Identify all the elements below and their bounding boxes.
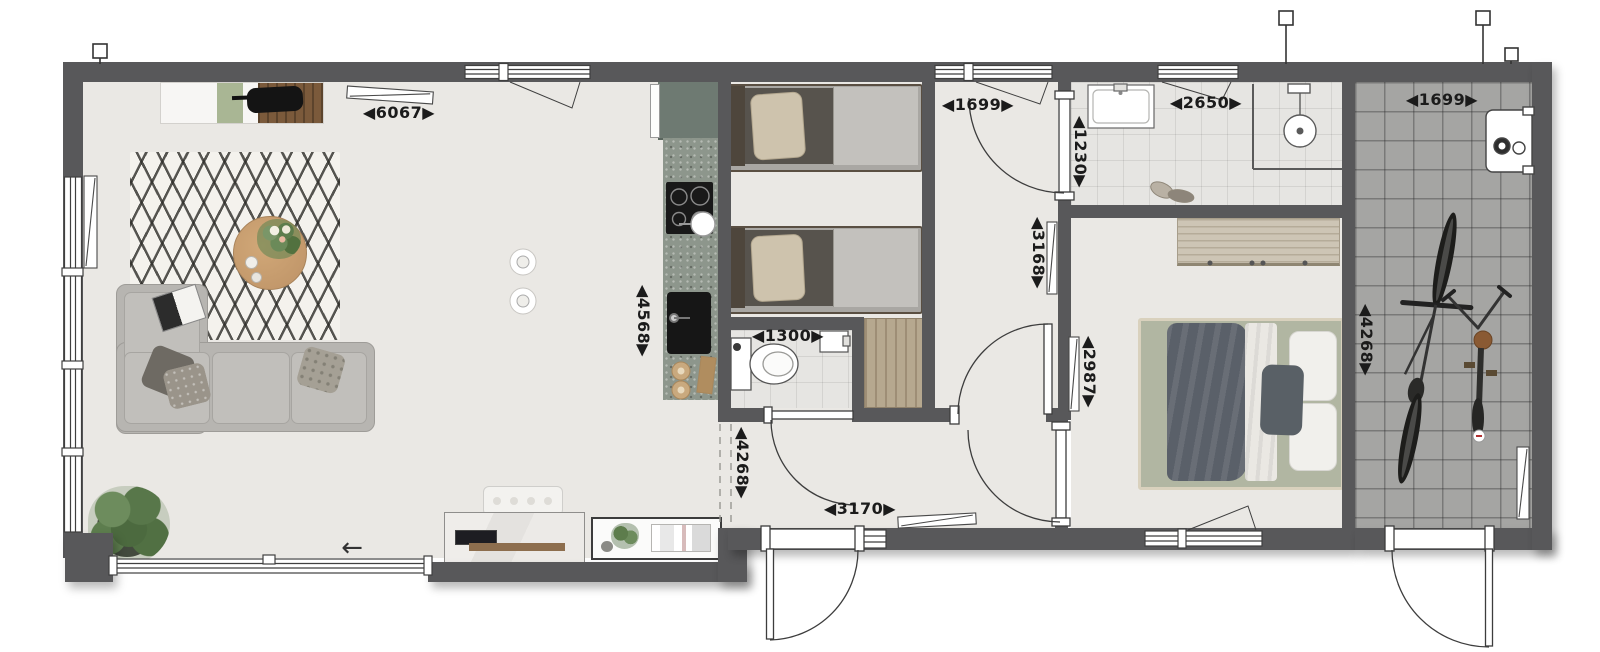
kitchen-sink: [667, 292, 711, 354]
twin-wardrobe: [864, 318, 924, 408]
coffee-table-candle: [251, 272, 262, 283]
wall: [1355, 528, 1552, 550]
bench-knob: [510, 497, 518, 505]
wall: [718, 82, 731, 420]
wall: [1058, 193, 1071, 205]
wall: [1055, 518, 1068, 528]
dim-kitchen-depth: ◀4568▶: [635, 285, 651, 357]
kitchen-tall-cabinet: [658, 82, 718, 140]
bed-pillow: [750, 234, 805, 303]
wall: [1532, 62, 1552, 550]
dim-entrance-width: ◀3170▶: [824, 501, 896, 517]
wall: [1342, 82, 1355, 528]
wall: [852, 317, 864, 422]
wall: [428, 562, 747, 582]
storage-room-floor: [1355, 82, 1532, 528]
cabinet-shelf: [469, 543, 565, 551]
cabinet-pot: [601, 541, 613, 552]
media-cabinet: [444, 512, 585, 564]
cooktop: [666, 182, 713, 234]
bench-knob: [493, 497, 501, 505]
bed-pillow: [750, 91, 806, 160]
sliding-direction-arrow-icon: ←: [341, 535, 363, 561]
single-bed-2: [728, 226, 923, 314]
tv: [246, 86, 303, 114]
dim-bedroom-depth: ◀2987▶: [1081, 336, 1097, 408]
sideboard-green-section: [217, 83, 243, 123]
display-cabinet: [591, 517, 722, 560]
wall: [728, 528, 1355, 550]
single-bed-1: [728, 84, 923, 172]
wall: [922, 82, 935, 408]
floor-plan: ◀6067▶ ◀4568▶ ◀1699▶ ◀2650▶ ◀1699▶ ◀1230…: [0, 0, 1600, 652]
dim-living-depth: ◀4268▶: [734, 427, 750, 499]
dim-hallway-width: ◀1699▶: [942, 97, 1014, 113]
dim-storage-width: ◀1699▶: [1406, 92, 1478, 108]
dim-bathroom-depth: ◀1230▶: [1072, 116, 1088, 188]
cabinet-frames: [651, 524, 711, 552]
double-bed: [1138, 318, 1344, 490]
bed-duvet: [833, 229, 918, 307]
coffee-table-flowers: [268, 224, 294, 246]
bed-headboard: [730, 86, 745, 166]
dim-bathroom-width: ◀2650▶: [1170, 95, 1242, 111]
vent-icon: [93, 11, 1518, 64]
wall: [1058, 205, 1071, 420]
bed-headboard: [730, 228, 745, 308]
bed-pillow-dark: [1260, 364, 1304, 435]
bed-blanket: [1167, 323, 1247, 481]
master-wardrobe: [1177, 218, 1340, 266]
coffee-table-dish: [245, 256, 258, 269]
sofa-cushion: [212, 352, 290, 424]
sliding-door: [109, 555, 432, 575]
bench-knob: [544, 497, 552, 505]
wall: [1055, 420, 1068, 430]
dim-storage-depth: ◀4268▶: [1358, 304, 1374, 376]
dim-wc-width: ◀1300▶: [752, 328, 824, 344]
wall: [63, 82, 83, 558]
kitchen-cabinet-panel: [650, 84, 660, 138]
wall: [65, 533, 113, 582]
wall: [1058, 82, 1071, 98]
kitchen-counter: [663, 138, 718, 400]
wall: [63, 62, 1552, 82]
dim-living-width: ◀6067▶: [363, 105, 435, 121]
dim-hallway-depth: ◀3168▶: [1030, 217, 1046, 289]
wall: [864, 408, 955, 422]
wall: [1058, 205, 1342, 218]
bed-duvet: [833, 87, 918, 165]
cabinet-plant: [611, 523, 639, 549]
bench-knob: [527, 497, 535, 505]
wall: [718, 408, 770, 422]
